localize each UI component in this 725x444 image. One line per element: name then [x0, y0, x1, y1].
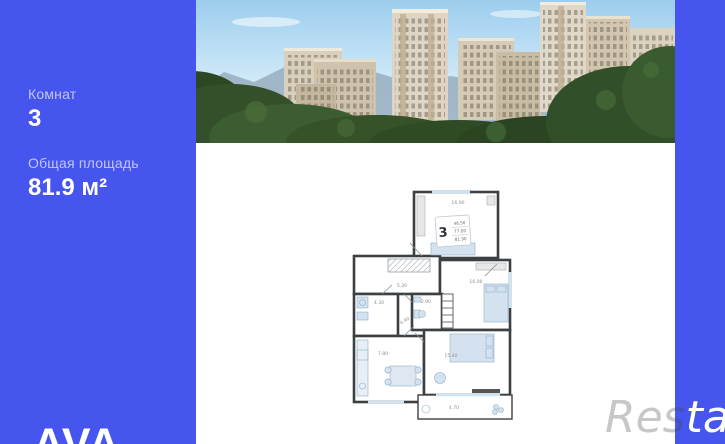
stamp-rooms: 3	[438, 225, 448, 241]
stamp-area-mid: 77.00	[454, 228, 467, 234]
sidebar: Комнат 3 Общая площадь 81.9 м² AVA	[0, 0, 196, 444]
label-hall: 5.30	[397, 283, 407, 289]
watermark-tate: tate	[686, 392, 725, 443]
tv-stand	[472, 389, 500, 393]
watermark-res: Res	[605, 392, 686, 443]
rooms-label: Комнат	[28, 86, 76, 102]
shaft	[442, 294, 453, 328]
building-photo-scene	[196, 0, 675, 143]
label-bedroom-top: 16.90	[451, 200, 464, 206]
area-value: 81.9 м²	[28, 174, 139, 202]
floorplan-panel: 16.90 5.30 16.00 4.30 2.90 4.40 7.80 15.…	[196, 143, 675, 444]
dining-table	[390, 366, 416, 386]
wardrobe	[417, 196, 425, 236]
cloud	[232, 17, 300, 27]
label-kitchen: 7.80	[378, 351, 388, 357]
toilet	[419, 311, 426, 318]
armchair	[435, 373, 446, 384]
floorplan-svg: 16.90 5.30 16.00 4.30 2.90 4.40 7.80 15.…	[352, 190, 513, 422]
cloud	[490, 10, 542, 18]
stamp-area-living: 48.50	[453, 220, 466, 226]
restate-watermark: Restate	[605, 396, 725, 440]
label-balcony: 4.70	[449, 405, 459, 411]
rooms-value: 3	[28, 105, 76, 133]
stamp-area-total: 81.90	[454, 236, 467, 242]
ava-logo: AVA	[33, 423, 120, 444]
sink	[357, 312, 368, 320]
rooms-field: Комнат 3	[28, 86, 76, 133]
area-field: Общая площадь 81.9 м²	[28, 155, 139, 202]
label-living: 15.40	[444, 353, 457, 359]
label-corridor: 4.40	[399, 316, 411, 327]
label-bathroom: 4.30	[374, 300, 384, 306]
label-bedroom-right: 16.00	[469, 279, 482, 285]
label-wc: 2.90	[421, 299, 431, 305]
area-stamp: 3 48.50 77.00 81.90	[435, 215, 471, 247]
washing-machine	[357, 297, 368, 308]
listing-card: Комнат 3 Общая площадь 81.9 м² AVA	[0, 0, 725, 444]
kitchen-counter	[357, 340, 368, 396]
dresser	[476, 263, 506, 270]
hall-wardrobe-hatch	[388, 259, 430, 272]
radiator	[487, 196, 495, 205]
area-label: Общая площадь	[28, 155, 139, 171]
building-photo	[196, 0, 675, 143]
